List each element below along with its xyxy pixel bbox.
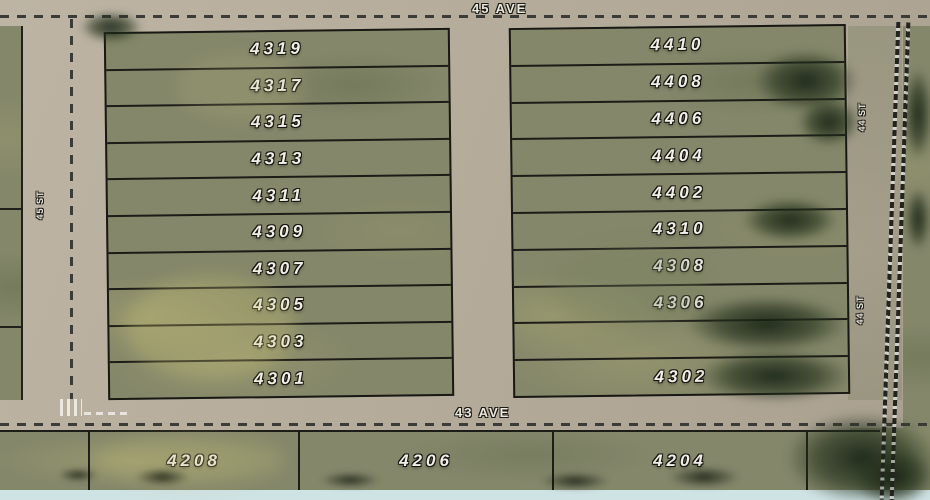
lot-number-label: 4305 (253, 295, 307, 316)
parcel-block-south: 4208 4206 4204 (0, 430, 880, 492)
tree-shadow (668, 466, 740, 488)
parcel-4311[interactable]: 4311 (108, 176, 450, 217)
aerial-parcel-map[interactable]: 4319 4317 4315 4313 4311 4309 4307 4305 … (0, 0, 930, 500)
parcel-4308[interactable]: 4308 (513, 247, 846, 288)
lot-number-label: 4303 (254, 332, 308, 353)
lot-number-label: 4309 (252, 222, 306, 243)
lot-number-label: 4307 (253, 259, 307, 280)
parcel-boundary-line (0, 208, 21, 210)
lot-number-label: 4402 (652, 182, 706, 203)
lot-number-label: 4313 (251, 149, 305, 170)
parcel-4208[interactable]: 4208 (88, 432, 298, 490)
lot-number-label: 4206 (399, 451, 453, 471)
parcel-4305[interactable]: 4305 (109, 286, 451, 327)
road-marking (84, 412, 128, 415)
lot-number-label: 4301 (254, 368, 308, 389)
tree-canopy (742, 198, 838, 242)
tree-canopy (686, 296, 848, 352)
lot-number-label: 4408 (651, 72, 705, 93)
street-label-43-ave: 43 AVE (455, 405, 510, 420)
parcel-4319[interactable]: 4319 (106, 30, 448, 71)
lot-number-label: 4406 (651, 109, 705, 130)
parcel-4303[interactable]: 4303 (109, 323, 451, 364)
parcel-4315[interactable]: 4315 (107, 103, 449, 144)
tree-canopy (906, 188, 930, 250)
tree-canopy (698, 350, 850, 402)
road-centerline-left-street (70, 19, 73, 399)
crosswalk-marking (60, 399, 82, 416)
tree-shadow (135, 468, 190, 486)
parcel-4309[interactable]: 4309 (108, 213, 450, 254)
road-centerline-43ave (0, 423, 930, 426)
street-label-right-street-upper: 44 ST (857, 95, 867, 139)
tree-shadow (58, 468, 98, 482)
lot-number-label: 4311 (252, 185, 305, 206)
parcel-boundary-line (0, 326, 21, 328)
road-centerline-45ave (0, 15, 930, 18)
lot-number-label: 4410 (650, 35, 704, 56)
parcel-4404[interactable]: 4404 (512, 136, 845, 177)
street-label-left-street: 45 ST (35, 183, 45, 227)
lot-number-label: 4317 (250, 76, 304, 97)
sidewalk-strip (0, 490, 930, 500)
parcel-4317[interactable]: 4317 (106, 67, 448, 108)
tree-shadow (540, 472, 610, 490)
street-label-45-ave: 45 AVE (472, 1, 527, 16)
tree-canopy (798, 98, 860, 146)
lot-number-label: 4308 (653, 256, 707, 277)
parcel-4307[interactable]: 4307 (108, 249, 450, 290)
tree-canopy (80, 12, 142, 42)
lot-number-label: 4315 (251, 112, 305, 133)
lot-number-label: 4310 (653, 219, 707, 240)
lot-number-label: 4208 (167, 451, 221, 471)
tree-shadow (320, 472, 380, 488)
west-edge-parcel-sliver (0, 26, 23, 400)
lot-number-label: 4319 (250, 39, 304, 60)
lot-number-label: 4404 (652, 145, 706, 166)
street-label-right-street-lower: 44 ST (855, 288, 865, 332)
parcel-4301[interactable]: 4301 (110, 359, 452, 398)
parcel-block-west: 4319 4317 4315 4313 4311 4309 4307 4305 … (104, 28, 454, 400)
parcel-4313[interactable]: 4313 (107, 140, 449, 181)
